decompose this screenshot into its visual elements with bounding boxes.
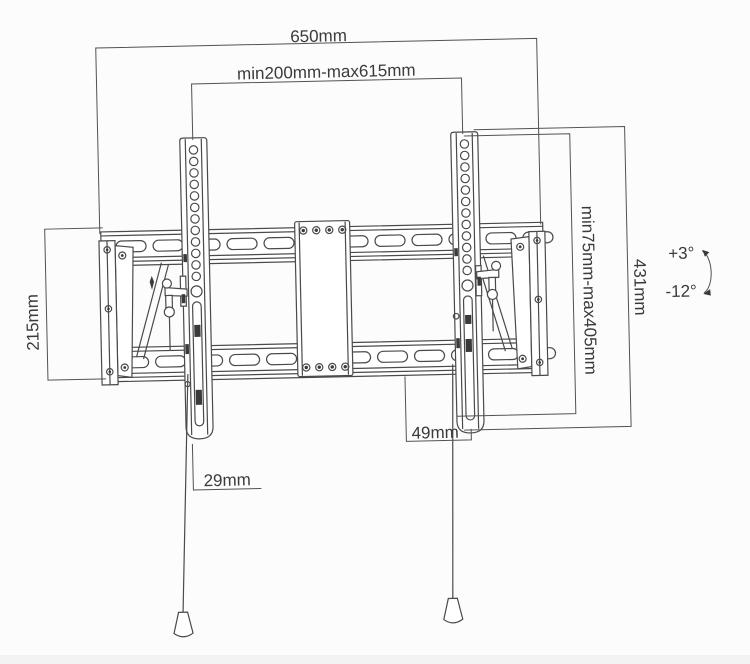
right-pull-knob: [443, 598, 463, 623]
mount-diagram: 650mm min200mm-max615mm 215mm min75mm-ma…: [0, 0, 750, 664]
tilt-up-label: +3°: [668, 244, 695, 264]
right-end-cap: [529, 231, 548, 375]
dim-label-bottom-offset: 49mm: [411, 423, 459, 443]
scan-edge-smudge: [0, 655, 750, 664]
left-keyhole-arrow-icon: [150, 276, 155, 290]
dim-label-bracket-height: 431mm: [630, 259, 650, 316]
dim-bracket-width: 29mm: [192, 443, 261, 491]
left-end-cap: [99, 241, 118, 385]
tilt-angle-annotation: +3° -12°: [664, 243, 711, 301]
tilt-arc-icon: [702, 250, 711, 296]
dim-plate-height: 215mm: [21, 228, 106, 381]
scanned-page: 650mm min200mm-max615mm 215mm min75mm-ma…: [0, 0, 750, 664]
dim-label-plate-height: 215mm: [23, 294, 43, 351]
dim-label-mount-width-range: min200mm-max615mm: [237, 61, 416, 84]
tilt-down-label: -12°: [665, 281, 697, 301]
center-spacer-plate: [295, 221, 353, 377]
left-pull-knob: [174, 612, 194, 637]
dim-label-total-width: 650mm: [290, 26, 347, 46]
dim-mount-width-range: min200mm-max615mm: [191, 60, 463, 140]
dim-label-vesa-height-range: min75mm-max405mm: [578, 206, 601, 375]
dim-label-bracket-width: 29mm: [203, 470, 251, 490]
